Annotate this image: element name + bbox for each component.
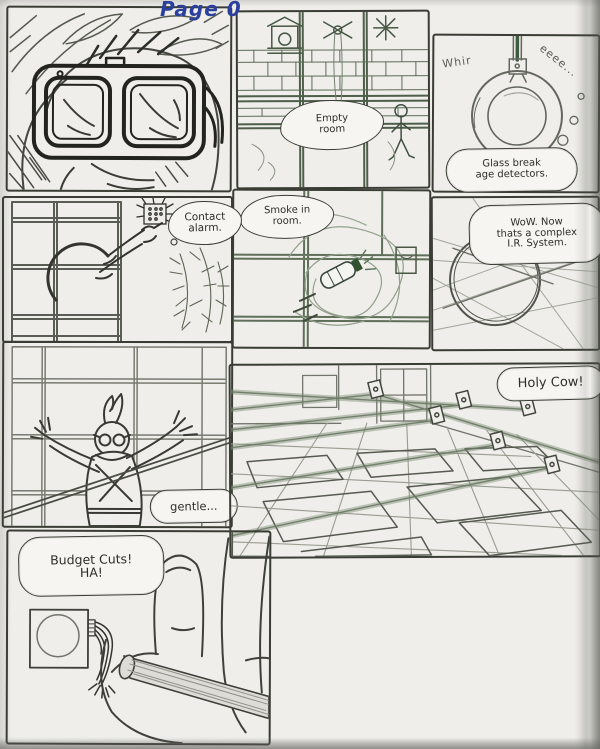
thought-bubble-glass-break: Glass break age detectors.: [445, 147, 578, 193]
speech-bubble-holy-cow: Holy Cow!: [496, 365, 600, 402]
panel-goggles-closeup: [6, 6, 233, 193]
panel-laser-grid-room: Holy Cow!: [229, 362, 600, 559]
wall-corner-lines: [232, 532, 269, 556]
display-case-icon: [268, 17, 302, 53]
panel-ninja-gentle: gentle...: [2, 341, 233, 529]
window-grid: [12, 202, 121, 341]
reaching-arm: [48, 223, 162, 300]
comic-page-scan: Page 0: [0, 0, 600, 749]
sparkle-icon: [374, 16, 398, 40]
chin-strokes: [61, 164, 154, 190]
walking-figure: [389, 105, 414, 160]
rope: [513, 36, 521, 60]
thought-bubble-budget-cuts: Budget Cuts! HA!: [18, 535, 165, 598]
floor-tiles: [247, 446, 591, 556]
goggles-face-drawing: [8, 8, 231, 191]
panel-contact-alarm: Contact alarm.: [2, 196, 233, 343]
panel-smoke-in-room: Smoke in room.: [232, 189, 432, 350]
panel-glass-break-detector: Whir eeee... Glass break age detectors.: [432, 34, 600, 194]
rod-icon: [117, 653, 269, 718]
panel-ir-system: WoW. Now thats a complex I.R. System.: [431, 196, 600, 352]
head-outline: [22, 48, 219, 191]
panel-empty-room: Empty room: [236, 10, 431, 190]
speech-bubble-gentle: gentle...: [150, 488, 239, 524]
thought-bubble-ir-system: WoW. Now thats a complex I.R. System.: [468, 202, 600, 265]
foliage-scribbles: [170, 248, 229, 332]
panel-budget-cuts: Budget Cuts! HA!: [6, 530, 272, 746]
page-title: Page 0: [160, 0, 242, 21]
goggles-icon: [34, 58, 223, 159]
wall-sensor-plate-icon: [30, 610, 95, 668]
